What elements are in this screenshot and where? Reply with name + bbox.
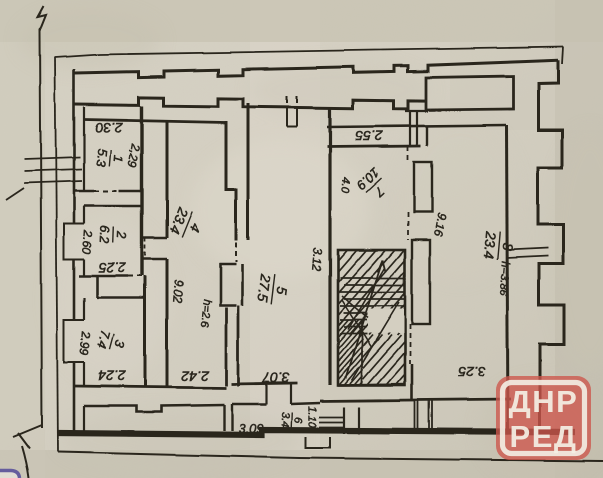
svg-text:2.25: 2.25 (98, 260, 126, 276)
svg-text:2.99: 2.99 (77, 330, 93, 356)
svg-text:РЕД: РЕД (510, 419, 578, 454)
svg-text:ДНР: ДНР (509, 384, 579, 419)
svg-text:3.25: 3.25 (458, 364, 485, 380)
svg-text:2.42: 2.42 (181, 368, 209, 384)
svg-text:2.24: 2.24 (98, 368, 126, 384)
svg-text:1.10: 1.10 (306, 406, 318, 428)
svg-text:5.3: 5.3 (93, 148, 110, 168)
svg-text:3.4: 3.4 (279, 412, 292, 428)
svg-text:3.07: 3.07 (261, 370, 289, 386)
svg-text:2: 2 (114, 230, 129, 240)
svg-text:6.2: 6.2 (97, 225, 113, 244)
svg-text:9.02: 9.02 (170, 279, 186, 304)
svg-text:1: 1 (111, 154, 127, 163)
svg-text:2.60: 2.60 (79, 229, 95, 255)
svg-text:23.4: 23.4 (481, 230, 499, 260)
svg-text:2.55: 2.55 (355, 128, 383, 144)
svg-text:4.0: 4.0 (338, 177, 351, 194)
svg-text:h=2.6: h=2.6 (198, 299, 212, 329)
svg-text:3,09: 3,09 (238, 421, 263, 436)
svg-text:3.12: 3.12 (309, 247, 325, 272)
svg-text:2.30: 2.30 (95, 120, 123, 136)
svg-text:8: 8 (500, 242, 517, 251)
